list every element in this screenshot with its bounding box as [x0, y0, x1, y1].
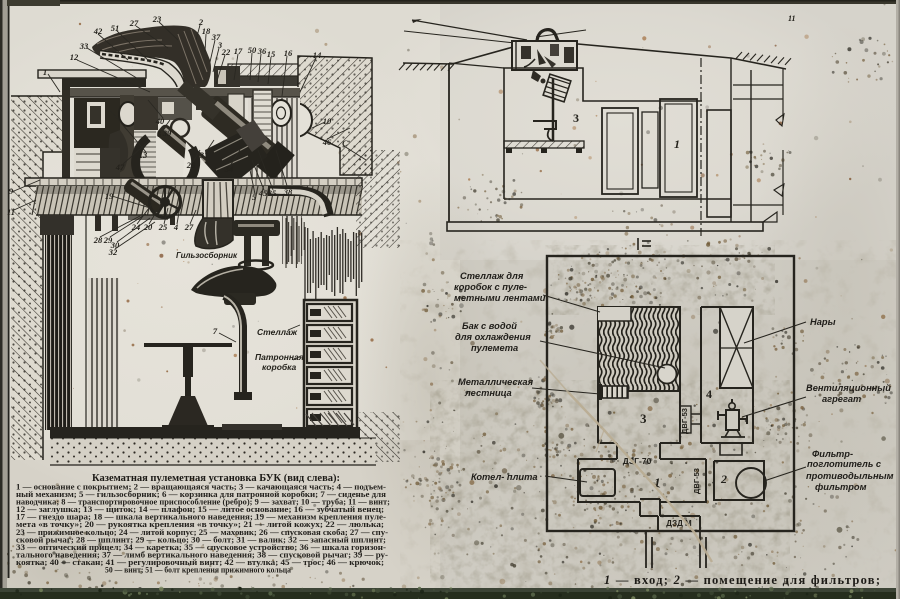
svg-text:23: 23: [152, 14, 162, 24]
svg-text:Вентиляционный: Вентиляционный: [806, 383, 891, 393]
svg-text:34: 34: [224, 164, 234, 174]
svg-text:13: 13: [139, 150, 148, 160]
svg-text:коробка: коробка: [262, 362, 297, 372]
svg-text:2: 2: [720, 472, 727, 486]
svg-text:50 — винт; 51 — болт крепления: 50 — винт; 51 — болт крепления прижимног…: [105, 566, 291, 575]
svg-text:3: 3: [640, 411, 647, 426]
svg-text:Металлическая: Металлическая: [458, 377, 534, 387]
svg-text:фильтром: фильтром: [815, 482, 867, 492]
svg-text:Стеллаж для: Стеллаж для: [460, 271, 524, 281]
svg-text:Гильзосборник: Гильзосборник: [176, 251, 238, 260]
svg-text:метными лентами: метными лентами: [454, 293, 546, 303]
svg-text:46: 46: [322, 137, 332, 147]
svg-text:Бак с водой: Бак с водой: [462, 321, 517, 331]
svg-text:36: 36: [257, 46, 267, 56]
svg-text:4: 4: [706, 387, 712, 401]
svg-text:противодыльным: противодыльным: [806, 471, 894, 481]
svg-text:16: 16: [284, 48, 293, 58]
svg-text:14: 14: [313, 50, 322, 60]
svg-text:1: 1: [43, 67, 47, 77]
svg-text:42: 42: [93, 26, 103, 36]
svg-text:Фильтр-: Фильтр-: [812, 449, 853, 459]
svg-text:3: 3: [573, 111, 579, 125]
svg-text:40: 40: [155, 116, 165, 126]
svg-text:11: 11: [7, 207, 15, 217]
svg-text:лестница: лестница: [464, 388, 512, 398]
svg-text:для охлаждения: для охлаждения: [455, 332, 531, 342]
svg-text:26: 26: [186, 160, 196, 170]
svg-text:ДВГ-53: ДВГ-53: [692, 468, 701, 494]
svg-text:33: 33: [79, 41, 89, 51]
svg-text:25: 25: [158, 222, 168, 232]
svg-text:поглотитель с: поглотитель с: [807, 459, 882, 469]
svg-text:ДЗГ-70: ДЗГ-70: [623, 456, 652, 466]
svg-text:27: 27: [184, 222, 194, 232]
svg-text:Нары: Нары: [810, 317, 836, 327]
svg-text:Патронная: Патронная: [255, 352, 304, 362]
svg-text:35: 35: [267, 188, 277, 198]
svg-text:45: 45: [258, 188, 268, 198]
svg-text:22: 22: [221, 47, 231, 57]
svg-text:ДВГ-53: ДВГ-53: [680, 408, 689, 434]
svg-text:пулемета: пулемета: [471, 343, 518, 353]
svg-text:1: 1: [674, 137, 680, 151]
svg-text:коробок с пуле-: коробок с пуле-: [454, 282, 527, 292]
svg-text:Котел- плита: Котел- плита: [471, 472, 538, 482]
svg-text:11: 11: [788, 14, 796, 23]
svg-text:10: 10: [323, 116, 332, 126]
svg-text:агрегат: агрегат: [822, 394, 861, 404]
svg-text:1 — вход; 2 — помещение для: 1 — вход; 2 — помещение для фильтров;: [604, 573, 880, 587]
